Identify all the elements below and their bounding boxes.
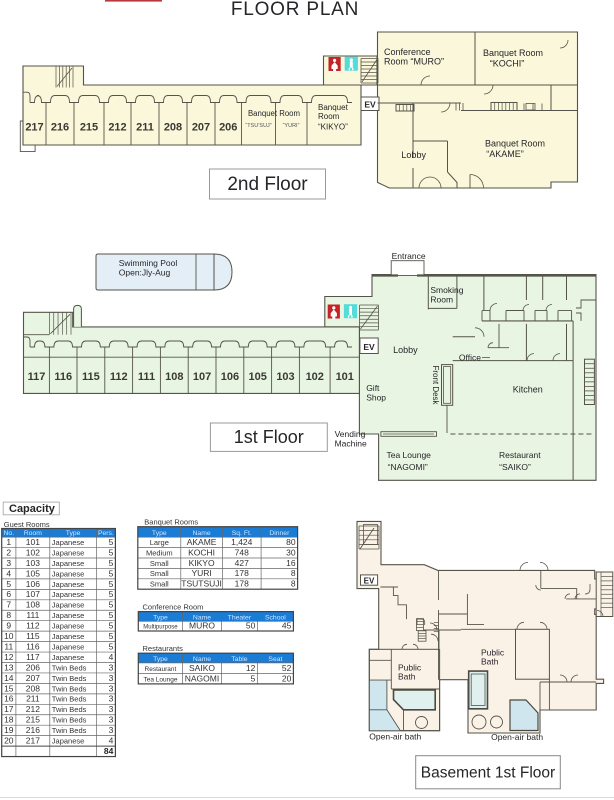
svg-text:208: 208 — [164, 122, 182, 134]
svg-text:80: 80 — [286, 537, 296, 547]
svg-text:215: 215 — [80, 122, 98, 134]
svg-text:Twin Beds: Twin Beds — [52, 663, 87, 672]
svg-text:5: 5 — [109, 621, 114, 631]
svg-text:103: 103 — [276, 371, 294, 383]
svg-text:Japanese: Japanese — [52, 590, 85, 599]
svg-text:Small: Small — [150, 569, 169, 578]
svg-text:Machine: Machine — [335, 439, 367, 449]
svg-text:Small: Small — [150, 580, 169, 589]
svg-text:Open-air bath: Open-air bath — [369, 732, 421, 742]
svg-text:17: 17 — [4, 704, 14, 714]
svg-text:Japanese: Japanese — [52, 559, 85, 568]
svg-text:Capacity: Capacity — [9, 503, 56, 515]
svg-text:3: 3 — [109, 694, 114, 704]
svg-text:215: 215 — [26, 715, 40, 725]
svg-text:5: 5 — [109, 579, 114, 589]
svg-text:10: 10 — [4, 631, 14, 641]
svg-text:13: 13 — [4, 662, 14, 672]
svg-text:Twin Beds: Twin Beds — [52, 705, 87, 714]
svg-text:Kitchen: Kitchen — [513, 385, 543, 395]
svg-text:20: 20 — [282, 673, 292, 683]
svg-text:106: 106 — [221, 371, 239, 383]
svg-text:3: 3 — [109, 704, 114, 714]
svg-text:Japanese: Japanese — [52, 622, 85, 631]
svg-text:8: 8 — [6, 610, 11, 620]
svg-text:Japanese: Japanese — [52, 642, 85, 651]
svg-text:84: 84 — [104, 746, 114, 756]
svg-text:Twin Beds: Twin Beds — [52, 684, 87, 693]
svg-text:3: 3 — [6, 558, 11, 568]
svg-text:Lobby: Lobby — [401, 150, 426, 160]
svg-text:1,424: 1,424 — [231, 537, 253, 547]
svg-text:5: 5 — [109, 547, 114, 557]
svg-text:MURO: MURO — [189, 620, 215, 630]
svg-text:Twin Beds: Twin Beds — [52, 726, 87, 735]
svg-text:101: 101 — [26, 537, 40, 547]
svg-text:Smoking: Smoking — [430, 285, 463, 295]
svg-text:KOCHI: KOCHI — [188, 547, 215, 557]
svg-text:211: 211 — [136, 122, 154, 134]
svg-text:102: 102 — [306, 371, 324, 383]
svg-text:102: 102 — [26, 547, 40, 557]
svg-text:Japanese: Japanese — [52, 601, 85, 610]
svg-text:9: 9 — [6, 621, 11, 631]
svg-text:116: 116 — [54, 371, 72, 383]
svg-text:52: 52 — [282, 663, 292, 673]
svg-text:106: 106 — [26, 579, 40, 589]
svg-text:Japanese: Japanese — [52, 653, 85, 662]
svg-text:116: 116 — [26, 641, 40, 651]
svg-text:Japanese: Japanese — [52, 548, 85, 557]
svg-text:Tea Lounge: Tea Lounge — [143, 676, 177, 683]
svg-text:107: 107 — [193, 371, 211, 383]
svg-text:3: 3 — [109, 715, 114, 725]
svg-text:Medium: Medium — [146, 548, 173, 557]
svg-text:15: 15 — [4, 683, 14, 693]
svg-text:YURI: YURI — [191, 568, 211, 578]
svg-text:16: 16 — [4, 694, 14, 704]
svg-text:212: 212 — [26, 704, 40, 714]
svg-text:115: 115 — [82, 371, 100, 383]
svg-text:5: 5 — [109, 568, 114, 578]
svg-text:14: 14 — [4, 673, 14, 683]
svg-text:748: 748 — [235, 547, 249, 557]
svg-text:427: 427 — [235, 558, 249, 568]
svg-text:Japanese: Japanese — [52, 632, 85, 641]
svg-text:117: 117 — [26, 652, 40, 662]
svg-text:115: 115 — [26, 631, 40, 641]
svg-text:Open-air bath: Open-air bath — [491, 732, 543, 742]
svg-text:Japanese: Japanese — [52, 611, 85, 620]
svg-text:107: 107 — [26, 589, 40, 599]
svg-text:Office: Office — [459, 353, 481, 363]
svg-text:208: 208 — [26, 683, 40, 693]
svg-text:Banquet Rooms: Banquet Rooms — [144, 518, 198, 527]
svg-text:Banquet Room: Banquet Room — [248, 109, 300, 118]
svg-text:“AKAME”: “AKAME” — [486, 149, 524, 159]
svg-text:207: 207 — [26, 673, 40, 683]
svg-text:Type: Type — [66, 530, 81, 537]
svg-text:Basement 1st Floor: Basement 1st Floor — [421, 765, 555, 782]
svg-text:18: 18 — [4, 715, 14, 725]
svg-text:7: 7 — [6, 600, 11, 610]
svg-text:4: 4 — [6, 568, 11, 578]
svg-text:Twin Beds: Twin Beds — [52, 695, 87, 704]
svg-text:EV: EV — [364, 100, 376, 110]
svg-text:217: 217 — [26, 736, 40, 746]
svg-text:“TSU’SUJ”: “TSU’SUJ” — [245, 123, 271, 129]
svg-text:5: 5 — [109, 589, 114, 599]
svg-text:30: 30 — [286, 547, 296, 557]
svg-text:5: 5 — [251, 673, 256, 683]
svg-text:Conference Room: Conference Room — [143, 603, 204, 612]
svg-text:8: 8 — [291, 579, 296, 589]
svg-text:Bath: Bath — [398, 672, 416, 682]
svg-text:5: 5 — [109, 600, 114, 610]
svg-text:EV: EV — [364, 576, 375, 585]
svg-text:Large: Large — [150, 538, 169, 547]
svg-text:Multipurpose: Multipurpose — [143, 624, 178, 630]
svg-text:3: 3 — [109, 673, 114, 683]
svg-text:19: 19 — [4, 725, 14, 735]
svg-text:5: 5 — [109, 558, 114, 568]
svg-text:Room: Room — [430, 295, 453, 305]
svg-text:5: 5 — [109, 631, 114, 641]
svg-text:“KIKYO”: “KIKYO” — [318, 123, 348, 132]
svg-text:Banquet: Banquet — [318, 103, 349, 112]
svg-text:Tea Lounge: Tea Lounge — [386, 450, 431, 460]
svg-text:Swimming Pool: Swimming Pool — [119, 258, 178, 268]
svg-text:3: 3 — [109, 662, 114, 672]
svg-text:2: 2 — [6, 547, 11, 557]
svg-text:108: 108 — [26, 600, 40, 610]
svg-text:Room “MURO”: Room “MURO” — [384, 57, 444, 67]
svg-text:Lobby: Lobby — [393, 345, 418, 355]
svg-text:Type: Type — [153, 656, 168, 663]
svg-text:20: 20 — [4, 736, 14, 746]
svg-text:45: 45 — [282, 620, 292, 630]
svg-text:Restaurant: Restaurant — [499, 450, 541, 460]
svg-text:1: 1 — [6, 537, 11, 547]
svg-text:211: 211 — [26, 694, 40, 704]
svg-text:207: 207 — [192, 122, 210, 134]
svg-text:KIKYO: KIKYO — [189, 558, 215, 568]
svg-text:Restaurant: Restaurant — [145, 666, 177, 673]
svg-text:2nd Floor: 2nd Floor — [227, 174, 308, 195]
svg-text:“SAIKO”: “SAIKO” — [499, 462, 531, 472]
svg-text:TSUTSUJI: TSUTSUJI — [181, 579, 222, 589]
svg-text:Room: Room — [318, 112, 340, 121]
svg-text:178: 178 — [235, 568, 249, 578]
svg-text:Front Desk: Front Desk — [431, 365, 440, 405]
svg-text:Open:Jly-Aug: Open:Jly-Aug — [119, 268, 171, 278]
svg-text:101: 101 — [336, 371, 354, 383]
svg-text:NAGOMI: NAGOMI — [185, 673, 219, 683]
svg-text:206: 206 — [26, 662, 40, 672]
svg-text:Conference: Conference — [384, 47, 431, 57]
svg-text:“KOCHI”: “KOCHI” — [490, 59, 525, 69]
svg-text:Vending: Vending — [335, 429, 366, 439]
svg-text:216: 216 — [51, 122, 69, 134]
svg-text:8: 8 — [291, 568, 296, 578]
svg-text:Japanese: Japanese — [52, 538, 85, 547]
svg-text:AKAME: AKAME — [187, 537, 217, 547]
svg-text:12: 12 — [4, 652, 14, 662]
svg-text:206: 206 — [219, 122, 237, 134]
svg-text:Guest Rooms: Guest Rooms — [4, 520, 50, 529]
svg-text:Japanese: Japanese — [52, 580, 85, 589]
svg-text:112: 112 — [26, 621, 40, 631]
svg-text:3: 3 — [109, 683, 114, 693]
svg-text:11: 11 — [4, 641, 13, 651]
svg-text:212: 212 — [108, 122, 126, 134]
svg-text:EV: EV — [363, 342, 375, 352]
svg-text:5: 5 — [109, 537, 114, 547]
svg-text:Japanese: Japanese — [52, 569, 85, 578]
svg-text:216: 216 — [26, 725, 40, 735]
svg-text:FLOOR PLAN: FLOOR PLAN — [231, 0, 359, 20]
svg-text:111: 111 — [138, 371, 155, 383]
svg-text:Banquet Room: Banquet Room — [483, 48, 543, 58]
svg-text:217: 217 — [25, 122, 43, 134]
svg-text:Type: Type — [153, 614, 168, 621]
svg-text:Restaurants: Restaurants — [143, 644, 184, 653]
svg-text:12: 12 — [246, 663, 256, 673]
svg-text:103: 103 — [26, 558, 40, 568]
svg-text:4: 4 — [109, 652, 114, 662]
svg-text:3: 3 — [109, 725, 114, 735]
svg-text:Seat: Seat — [268, 656, 282, 663]
svg-text:Type: Type — [152, 530, 167, 537]
svg-text:Shop: Shop — [366, 392, 386, 402]
svg-text:5: 5 — [6, 579, 11, 589]
svg-text:5: 5 — [109, 641, 114, 651]
svg-text:108: 108 — [165, 371, 183, 383]
svg-text:Twin Beds: Twin Beds — [52, 716, 87, 725]
svg-text:105: 105 — [249, 371, 267, 383]
svg-text:Banquet Room: Banquet Room — [485, 139, 545, 149]
svg-text:SAIKO: SAIKO — [189, 663, 215, 673]
svg-text:“NAGOMI”: “NAGOMI” — [388, 462, 428, 472]
svg-text:112: 112 — [110, 371, 128, 383]
svg-text:50: 50 — [246, 620, 256, 630]
svg-text:“YURI”: “YURI” — [283, 123, 300, 129]
svg-text:105: 105 — [26, 568, 40, 578]
svg-text:Entrance: Entrance — [392, 251, 426, 261]
svg-text:Japanese: Japanese — [52, 737, 85, 746]
svg-text:111: 111 — [26, 610, 39, 620]
svg-text:117: 117 — [28, 371, 46, 383]
svg-text:5: 5 — [109, 610, 114, 620]
svg-text:178: 178 — [235, 579, 249, 589]
svg-text:Bath: Bath — [481, 657, 499, 667]
svg-text:Small: Small — [150, 559, 169, 568]
svg-text:1st Floor: 1st Floor — [234, 427, 304, 447]
svg-text:6: 6 — [6, 589, 11, 599]
svg-text:16: 16 — [286, 558, 296, 568]
svg-text:Twin Beds: Twin Beds — [52, 674, 87, 683]
svg-text:4: 4 — [109, 736, 114, 746]
